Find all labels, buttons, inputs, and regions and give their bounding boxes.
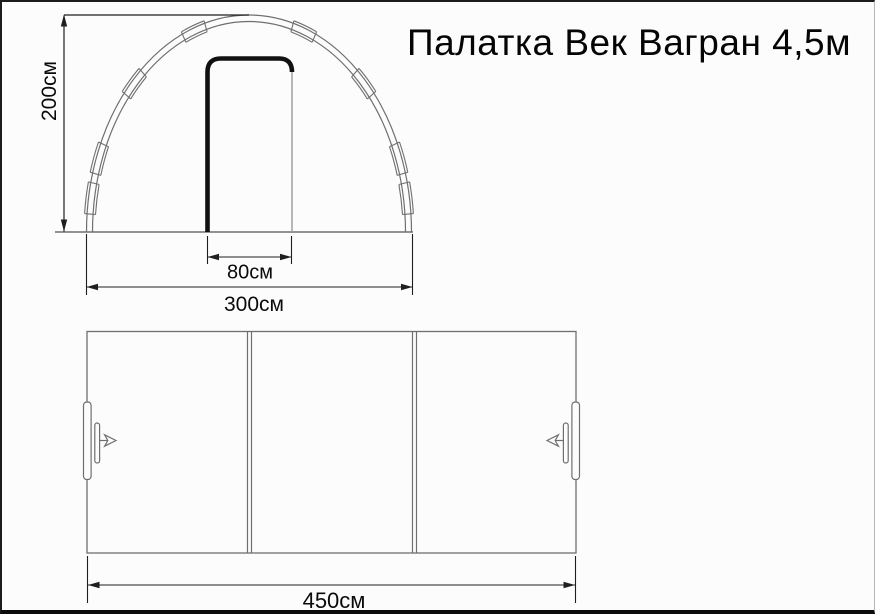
dimension-arrow-left [88, 582, 100, 588]
dimension-arrow-left [208, 254, 220, 260]
zipper-track-bar [563, 423, 568, 463]
length-dimension-label: 450см [303, 588, 366, 614]
door-flap-bar [84, 402, 92, 480]
panel-seam-right [413, 332, 417, 554]
tent-arch-inner [93, 22, 406, 233]
dimension-arrow-right [280, 254, 292, 260]
diagram-canvas [2, 2, 875, 614]
height-dimension-label: 200см [38, 61, 62, 121]
dimension-arrow-right [564, 582, 576, 588]
door-width-dimension-label: 80см [227, 262, 273, 285]
pole-joint-sleeves [85, 21, 414, 215]
width-dimension-label: 300см [224, 293, 284, 317]
tent-body-rect [87, 332, 576, 554]
dimension-arrow-right [401, 284, 413, 290]
tent-arch-outer [87, 15, 412, 232]
dimension-arrow-down [61, 220, 67, 232]
door-width-dimension [208, 236, 292, 264]
height-dimension [61, 15, 249, 232]
zipper-symbol-right [547, 402, 580, 480]
plan-view [84, 332, 580, 604]
panel-seam-left [248, 332, 252, 554]
door-outline [208, 59, 293, 233]
zipper-symbol-left [84, 402, 117, 480]
door-flap-bar [572, 402, 580, 480]
dimension-arrow-up [61, 15, 67, 27]
diagram-title: Палатка Век Вагран 4,5м [407, 22, 851, 64]
dimension-arrow-left [87, 284, 99, 290]
zipper-track-bar [95, 423, 100, 463]
tent-diagram: Палатка Век Вагран 4,5м 200см 80см 300см… [0, 0, 875, 614]
front-view [55, 15, 413, 296]
